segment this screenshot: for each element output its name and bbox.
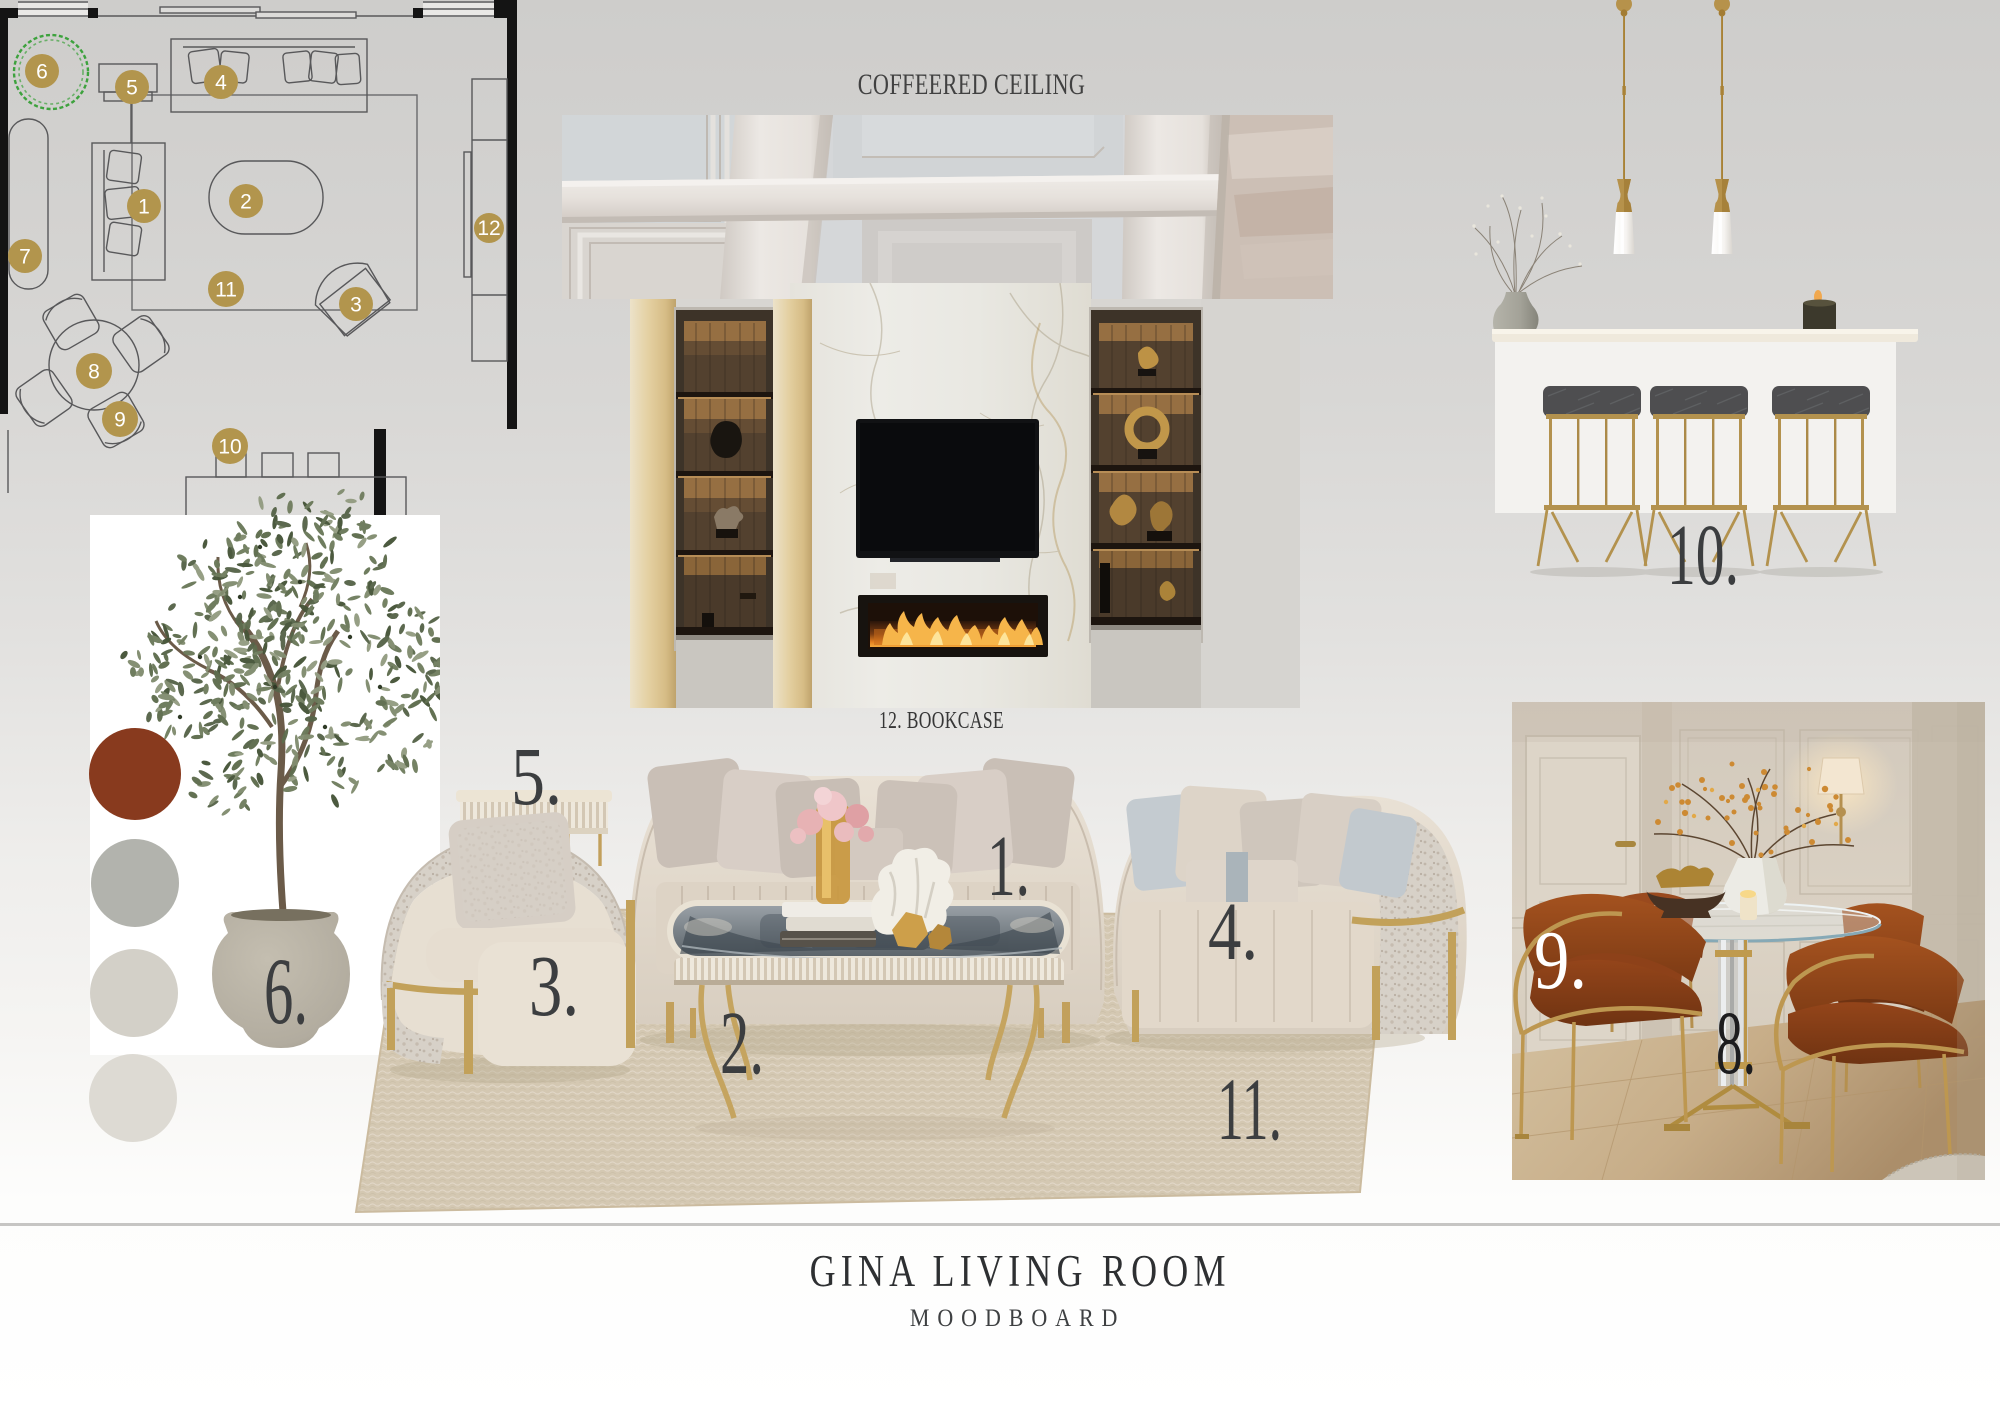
svg-text:9: 9: [114, 409, 126, 432]
svg-text:11.: 11.: [1217, 1061, 1282, 1159]
svg-text:3: 3: [350, 294, 362, 317]
svg-text:5.: 5.: [511, 740, 562, 822]
svg-text:12: 12: [477, 217, 500, 240]
svg-text:3.: 3.: [529, 937, 579, 1034]
svg-text:8.: 8.: [1716, 994, 1756, 1093]
svg-text:7: 7: [19, 246, 31, 269]
svg-text:2.: 2.: [720, 994, 764, 1093]
svg-text:10: 10: [218, 436, 241, 459]
svg-text:9.: 9.: [1534, 914, 1587, 1007]
svg-text:5: 5: [126, 77, 138, 100]
svg-text:4: 4: [215, 72, 227, 95]
svg-text:COFFEERED CEILING: COFFEERED CEILING: [858, 67, 1086, 101]
svg-text:MOODBOARD: MOODBOARD: [910, 1305, 1125, 1333]
svg-text:11: 11: [215, 279, 237, 302]
svg-text:2: 2: [240, 191, 252, 214]
svg-text:1.: 1.: [987, 817, 1030, 914]
svg-text:4.: 4.: [1208, 885, 1258, 977]
svg-text:8: 8: [88, 361, 100, 384]
svg-text:GINA LIVING ROOM: GINA LIVING ROOM: [810, 1246, 1231, 1295]
svg-text:1: 1: [138, 196, 150, 219]
svg-text:10.: 10.: [1667, 508, 1739, 603]
svg-text:6: 6: [36, 61, 48, 84]
svg-text:12. BOOKCASE: 12. BOOKCASE: [879, 706, 1004, 733]
svg-text:6.: 6.: [264, 938, 308, 1044]
